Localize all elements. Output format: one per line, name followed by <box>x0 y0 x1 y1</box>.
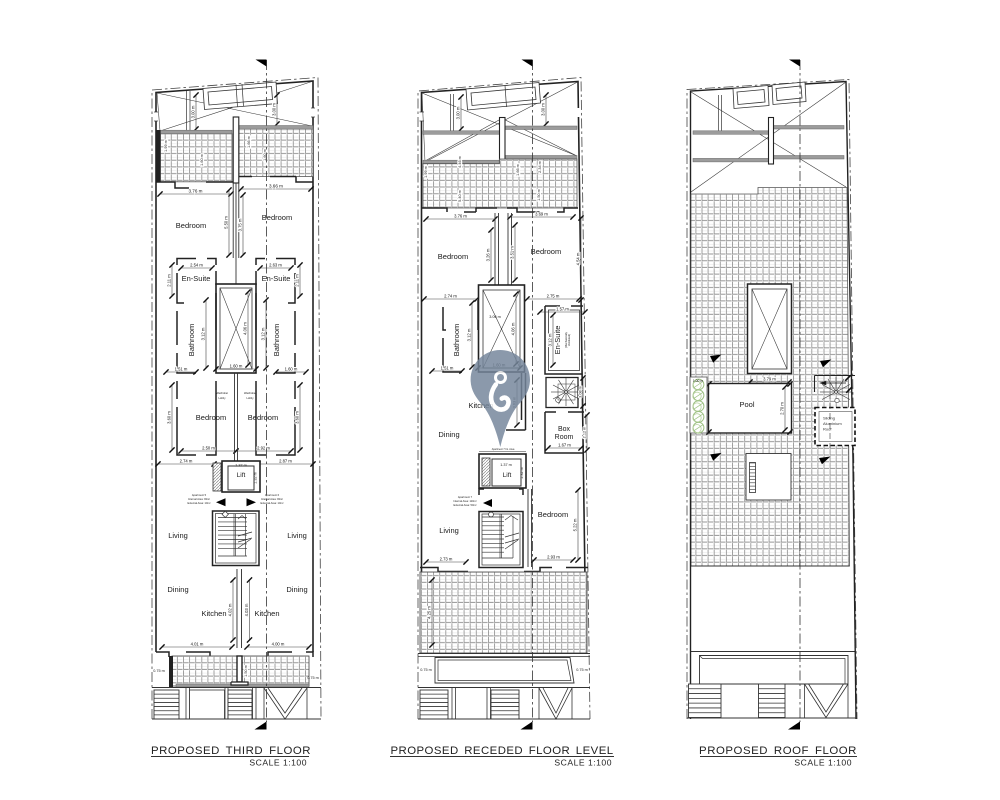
svg-text:External Area: 10m²: External Area: 10m² <box>261 501 284 505</box>
svg-text:1.50 m: 1.50 m <box>244 665 248 677</box>
svg-text:1.50 m: 1.50 m <box>537 189 541 201</box>
svg-text:SCALE 1:100: SCALE 1:100 <box>554 758 612 768</box>
svg-text:3.76 m: 3.76 m <box>454 214 467 219</box>
svg-text:2.11 m: 2.11 m <box>167 274 172 287</box>
svg-text:Dining: Dining <box>167 585 188 594</box>
svg-text:Wardrobe/: Wardrobe/ <box>216 391 228 395</box>
svg-text:PROPOSED RECEDED FLOOR LEVEL: PROPOSED RECEDED FLOOR LEVEL <box>390 745 613 757</box>
svg-text:3.00 m: 3.00 m <box>191 105 196 118</box>
svg-text:Internal Area: 110m²: Internal Area: 110m² <box>453 499 476 503</box>
svg-text:Apartment 5: Apartment 5 <box>192 493 207 497</box>
svg-text:Living: Living <box>287 531 307 540</box>
svg-text:5.50 m: 5.50 m <box>224 216 229 229</box>
svg-text:Bathroom: Bathroom <box>452 324 461 357</box>
svg-text:Bedroom: Bedroom <box>196 413 226 422</box>
svg-text:4.46 m: 4.46 m <box>458 156 462 168</box>
svg-text:Ventilated): Ventilated) <box>567 334 571 346</box>
svg-text:3.08 m: 3.08 m <box>579 386 583 398</box>
svg-text:4.06 m: 4.06 m <box>511 322 516 335</box>
svg-text:4.03 m: 4.03 m <box>244 603 249 616</box>
svg-text:2.12 m: 2.12 m <box>583 427 587 439</box>
svg-text:3.75 m: 3.75 m <box>238 218 243 231</box>
svg-text:2.11 m: 2.11 m <box>295 274 300 287</box>
svg-text:Lift: Lift <box>503 472 512 479</box>
svg-text:0.75 m: 0.75 m <box>153 669 165 673</box>
svg-text:2.93 m: 2.93 m <box>547 555 560 560</box>
svg-text:2.34 m: 2.34 m <box>538 161 542 173</box>
svg-text:3.12 m: 3.12 m <box>467 328 472 341</box>
svg-text:1.99 m: 1.99 m <box>424 166 428 178</box>
svg-text:3.79 m: 3.79 m <box>763 377 776 382</box>
svg-text:1.99 m: 1.99 m <box>164 140 168 152</box>
svg-text:3.12 m: 3.12 m <box>261 327 266 340</box>
svg-text:1.37 m: 1.37 m <box>235 464 247 468</box>
svg-text:1.51 m: 1.51 m <box>441 366 454 371</box>
svg-text:3.60 m: 3.60 m <box>167 411 172 424</box>
svg-text:3.00 m: 3.00 m <box>272 103 277 116</box>
svg-text:Roof: Roof <box>823 427 832 432</box>
svg-text:2.63 m: 2.63 m <box>269 263 282 268</box>
svg-text:SCALE 1:100: SCALE 1:100 <box>794 758 852 768</box>
svg-text:1.57 m: 1.57 m <box>556 307 569 312</box>
svg-text:Bedroom: Bedroom <box>531 247 561 256</box>
svg-text:4.00 m: 4.00 m <box>272 642 285 647</box>
svg-text:Wardrobe/: Wardrobe/ <box>244 391 256 395</box>
svg-text:2.73 m: 2.73 m <box>440 557 453 562</box>
svg-text:4.25 m: 4.25 m <box>427 606 432 619</box>
svg-text:4.06 m: 4.06 m <box>243 322 248 335</box>
svg-text:2.74 m: 2.74 m <box>180 459 193 464</box>
svg-text:1.60 m: 1.60 m <box>200 154 204 166</box>
svg-text:4.01 m: 4.01 m <box>191 642 204 647</box>
svg-text:Bedroom: Bedroom <box>176 221 206 230</box>
svg-text:Lobby: Lobby <box>246 396 254 400</box>
svg-text:Apartment 6: Apartment 6 <box>265 493 280 497</box>
svg-text:En-Suite: En-Suite <box>182 274 211 283</box>
svg-text:Dining: Dining <box>438 430 459 439</box>
svg-text:Living: Living <box>439 526 459 535</box>
svg-text:2.92 m: 2.92 m <box>257 446 270 451</box>
svg-text:3.06 m: 3.06 m <box>489 315 501 319</box>
svg-text:3.60 m: 3.60 m <box>295 411 300 424</box>
svg-text:5.22 m: 5.22 m <box>573 518 578 531</box>
svg-text:2.74 m: 2.74 m <box>444 294 457 299</box>
svg-text:3.51 m: 3.51 m <box>510 246 515 259</box>
svg-text:En-Suite: En-Suite <box>553 326 562 355</box>
svg-text:Bedroom: Bedroom <box>538 510 568 519</box>
svg-text:Pool: Pool <box>739 400 754 409</box>
svg-text:3.00 m: 3.00 m <box>541 103 546 116</box>
svg-text:1.00 m: 1.00 m <box>693 379 704 383</box>
svg-text:Kitchen: Kitchen <box>254 609 279 618</box>
svg-text:Bathroom: Bathroom <box>187 324 196 357</box>
svg-text:1.66 m: 1.66 m <box>247 136 251 148</box>
svg-text:1.32 m: 1.32 m <box>520 467 524 479</box>
svg-text:4.02 m: 4.02 m <box>228 603 233 616</box>
svg-text:1.60 m: 1.60 m <box>285 367 298 372</box>
svg-text:1.32 m: 1.32 m <box>254 472 258 484</box>
svg-text:Sliding: Sliding <box>823 416 835 421</box>
svg-text:3.12 m: 3.12 m <box>548 333 553 346</box>
svg-text:3.26 m: 3.26 m <box>486 248 491 261</box>
svg-text:4.54 m: 4.54 m <box>576 252 581 265</box>
svg-text:2.54 m: 2.54 m <box>190 263 203 268</box>
svg-text:En-Suite: En-Suite <box>262 274 291 283</box>
svg-text:1.37 m: 1.37 m <box>500 463 512 467</box>
svg-text:Aluminium: Aluminium <box>823 421 842 426</box>
svg-text:1.60 m: 1.60 m <box>230 364 243 369</box>
svg-text:1.67 m: 1.67 m <box>558 443 571 448</box>
svg-text:Apartment 7 Int. Area: Apartment 7 Int. Area <box>492 448 515 451</box>
svg-text:3.12 m: 3.12 m <box>201 327 206 340</box>
svg-text:0.75 m: 0.75 m <box>307 676 319 680</box>
svg-text:3.66 m: 3.66 m <box>269 184 283 189</box>
svg-text:Apartment 7: Apartment 7 <box>458 495 473 499</box>
svg-text:3.00 m: 3.00 m <box>456 106 461 119</box>
svg-text:Lobby: Lobby <box>218 396 226 400</box>
svg-text:3.76 m: 3.76 m <box>188 189 202 194</box>
svg-text:Lift: Lift <box>237 472 246 479</box>
svg-text:0.75 m: 0.75 m <box>420 668 432 672</box>
svg-text:Living: Living <box>168 531 188 540</box>
svg-text:Bathroom: Bathroom <box>272 324 281 357</box>
svg-text:2.75 m: 2.75 m <box>547 294 560 299</box>
svg-text:3.69 m: 3.69 m <box>535 212 548 217</box>
svg-text:Internal Area: 93m²: Internal Area: 93m² <box>261 497 283 501</box>
svg-text:0.75 m: 0.75 m <box>576 668 588 672</box>
svg-text:Dining: Dining <box>286 585 307 594</box>
svg-text:External Area: 10m²: External Area: 10m² <box>188 501 211 505</box>
svg-text:Kitchen: Kitchen <box>201 609 226 618</box>
svg-text:5.40 m: 5.40 m <box>458 190 462 202</box>
svg-text:PROPOSED ROOF FLOOR: PROPOSED ROOF FLOOR <box>699 745 857 757</box>
svg-text:PROPOSED THIRD FLOOR: PROPOSED THIRD FLOOR <box>151 745 311 757</box>
svg-text:Bedroom: Bedroom <box>248 413 278 422</box>
svg-text:External Area: 50m²: External Area: 50m² <box>454 503 477 507</box>
svg-text:2.50 m: 2.50 m <box>202 446 215 451</box>
svg-text:2.87 m: 2.87 m <box>279 459 292 464</box>
svg-text:Internal Area: 93m²: Internal Area: 93m² <box>188 497 210 501</box>
svg-text:1.66 m: 1.66 m <box>516 164 520 176</box>
svg-text:2.70 m: 2.70 m <box>780 402 785 415</box>
svg-text:1.51 m: 1.51 m <box>175 367 188 372</box>
svg-text:Room: Room <box>555 434 574 441</box>
svg-text:Box: Box <box>558 426 571 433</box>
svg-text:Bedroom: Bedroom <box>438 252 468 261</box>
svg-text:SCALE 1:100: SCALE 1:100 <box>249 758 307 768</box>
